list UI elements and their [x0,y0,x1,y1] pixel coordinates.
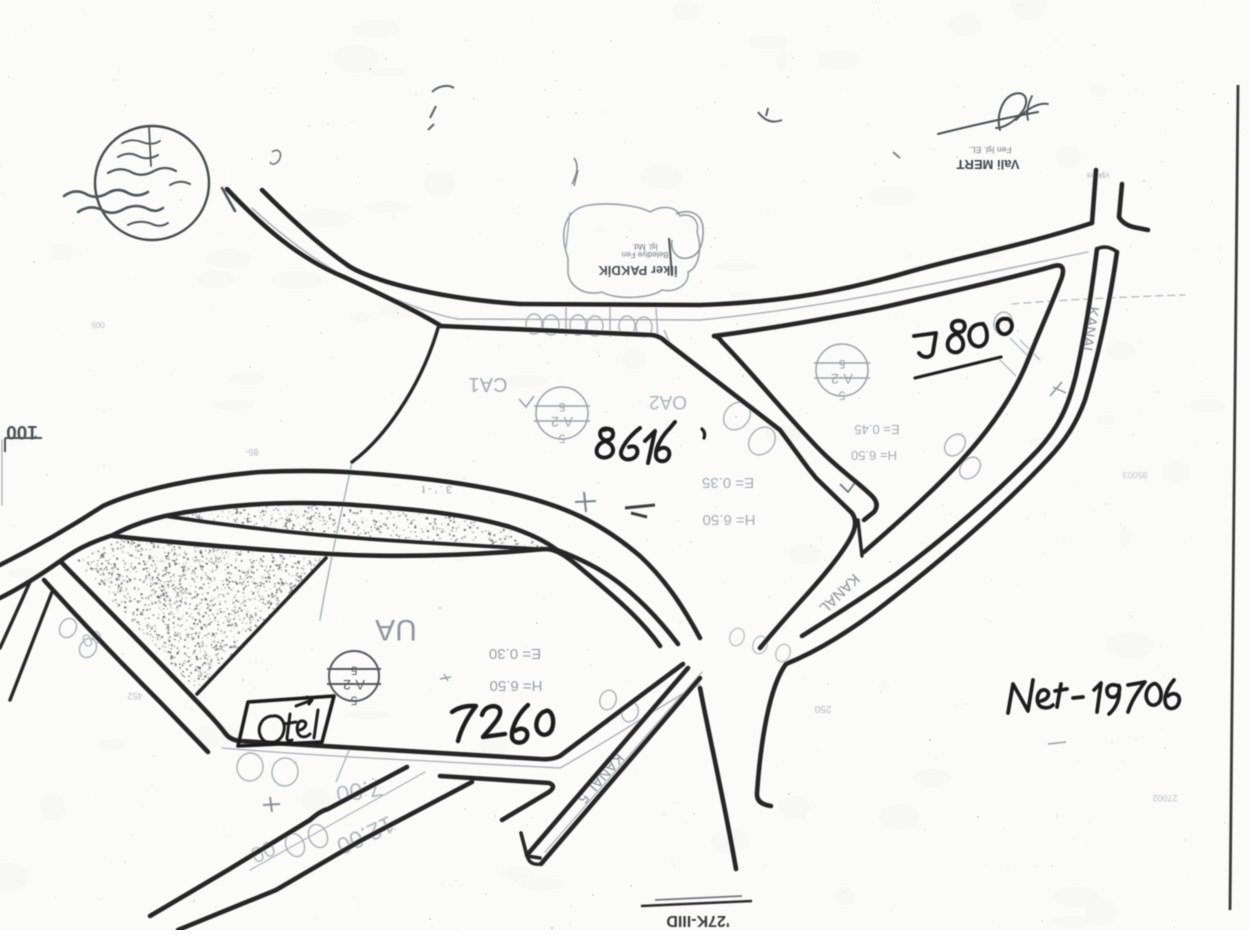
svg-text:85003: 85003 [1122,470,1147,480]
svg-text:27002: 27002 [1152,793,1177,803]
svg-text:3 . ' - t: 3 . ' - t [422,483,452,495]
svg-text:UA: UA [375,613,417,646]
svg-text:5: 5 [838,357,845,371]
svg-text:OA2: OA2 [649,391,687,412]
svg-text:H= 6.50: H= 6.50 [851,448,897,463]
svg-text:A-2: A-2 [343,677,365,693]
svg-text:5: 5 [838,388,845,402]
svg-text:İlker PAKDİK: İlker PAKDİK [598,263,678,278]
svg-text:A-2: A-2 [551,414,573,430]
svg-text:E= 0.35: E= 0.35 [702,474,754,491]
svg-text:5: 5 [350,664,357,678]
svg-text:E= 0.45: E= 0.45 [854,422,899,437]
svg-text:CA1: CA1 [469,373,508,395]
svg-text:Fen İşl. EL.: Fen İşl. EL. [969,145,1012,155]
svg-text:250: 250 [814,703,831,714]
svg-text:Vali MERT: Vali MERT [957,157,1020,172]
svg-text:5: 5 [350,694,357,708]
svg-text:H= 6.50: H= 6.50 [703,511,756,528]
svg-text:E= 0.30: E= 0.30 [489,645,541,662]
svg-text:A-2: A-2 [831,371,853,387]
svg-text:İşl. Md.: İşl. Md. [632,242,658,251]
svg-text:H= 6.50: H= 6.50 [490,677,543,694]
svg-text:'27K-IIID: '27K-IIID [666,912,729,929]
svg-text:5: 5 [558,400,565,414]
svg-text:5: 5 [558,431,565,445]
svg-text:452: 452 [127,691,142,701]
svg-text:005: 005 [91,320,105,329]
svg-text:85-: 85- [245,447,258,457]
